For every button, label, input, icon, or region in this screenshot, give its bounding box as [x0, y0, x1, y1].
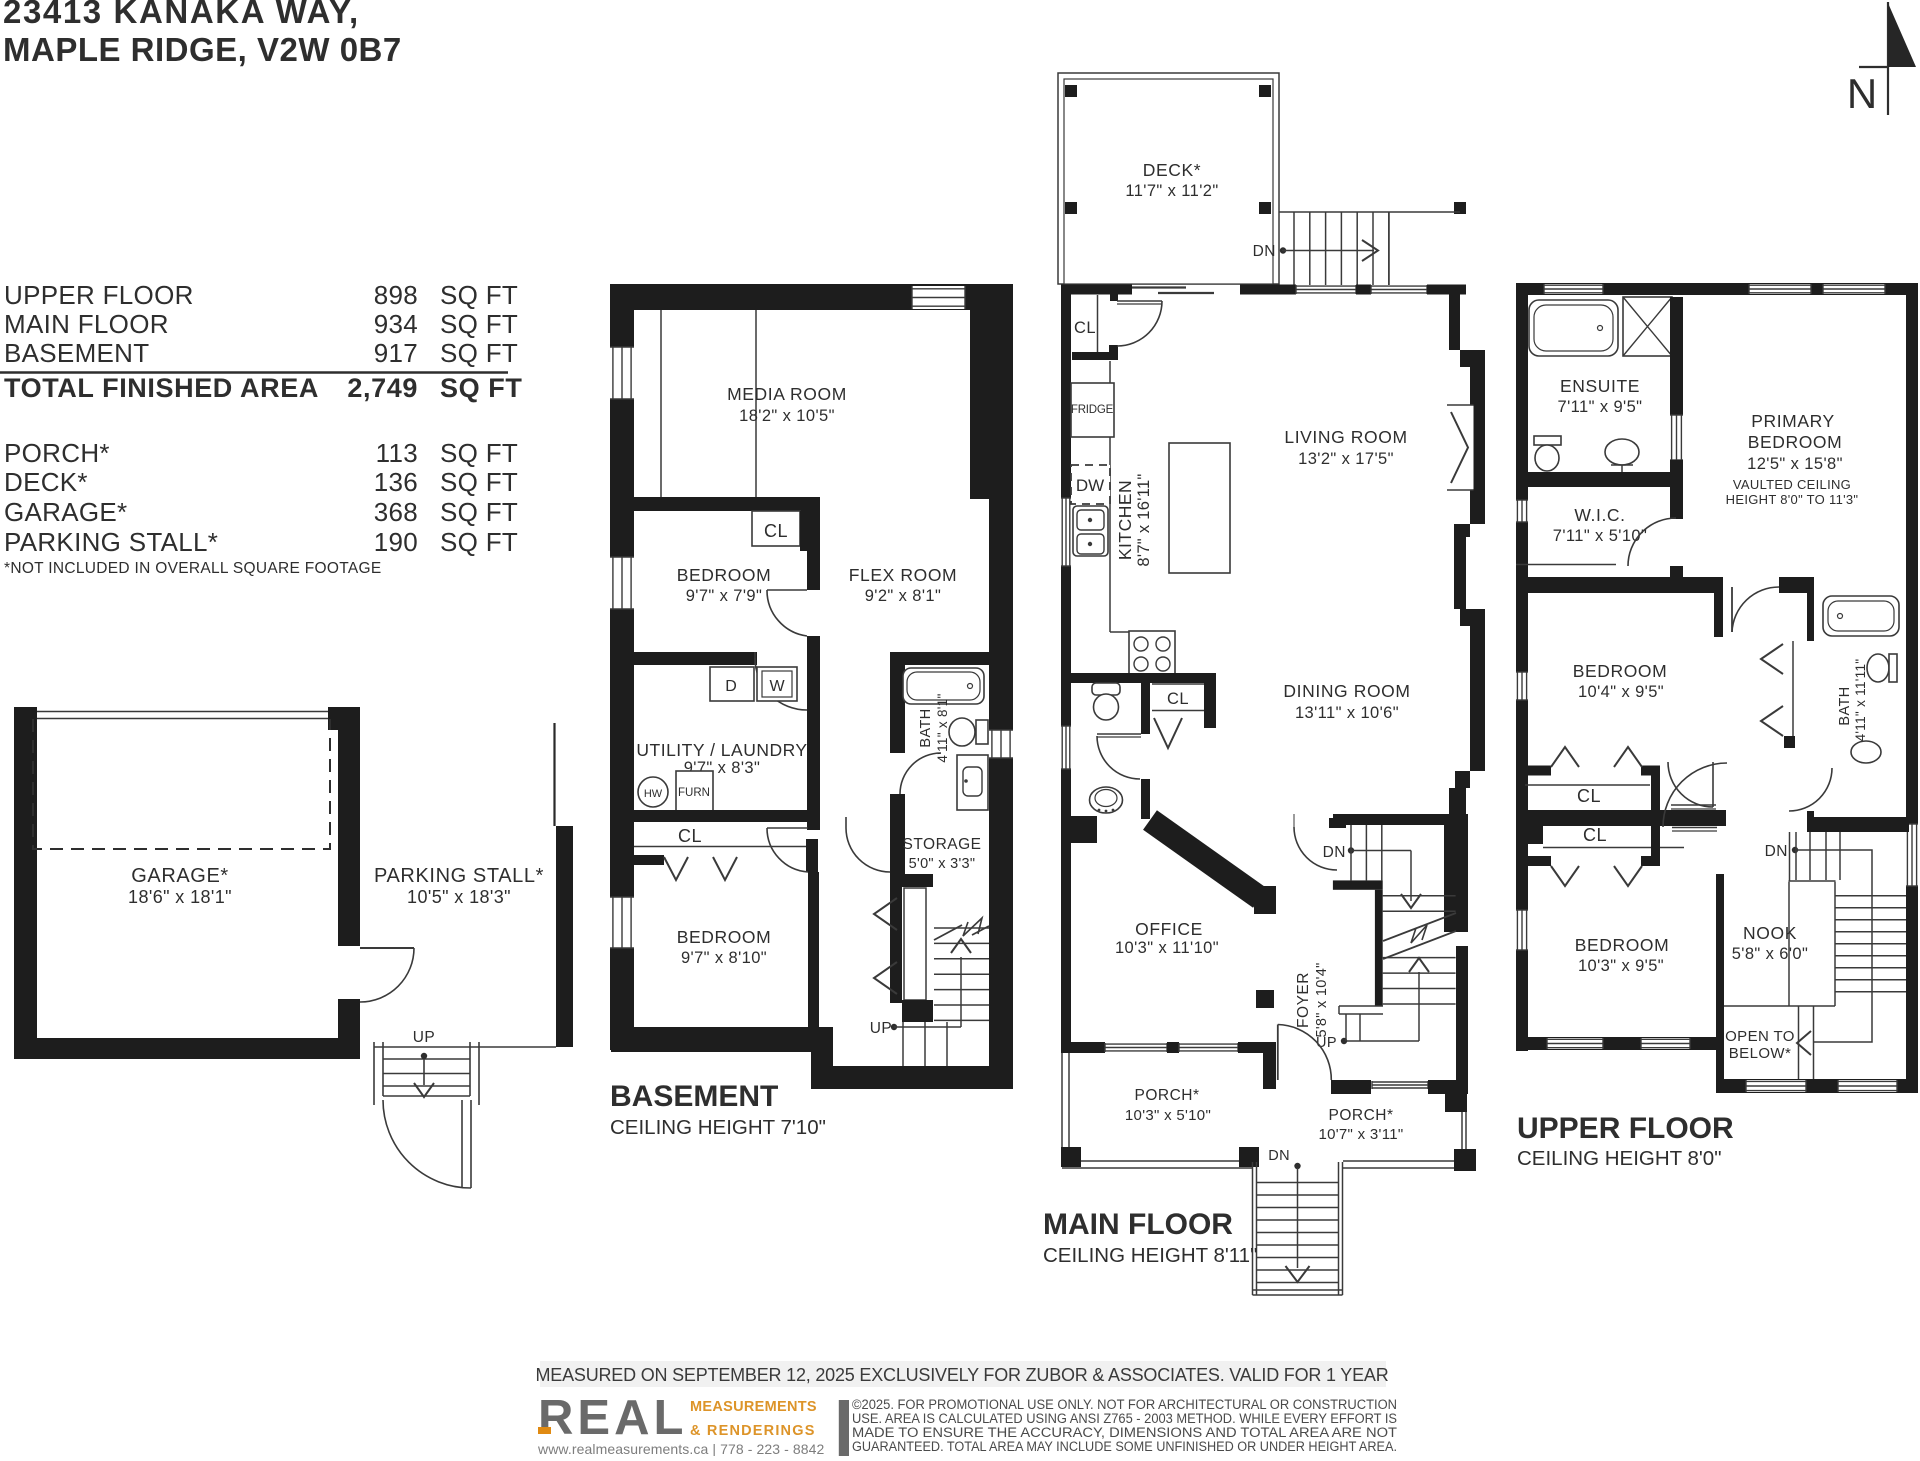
svg-text:W.I.C.: W.I.C.	[1574, 505, 1625, 525]
svg-text:898: 898	[374, 280, 418, 310]
svg-text:FRIDGE: FRIDGE	[1071, 404, 1114, 416]
svg-text:FLEX ROOM: FLEX ROOM	[849, 565, 957, 585]
svg-text:MAPLE RIDGE, V2W 0B7: MAPLE RIDGE, V2W 0B7	[3, 31, 402, 68]
svg-text:D: D	[725, 678, 737, 695]
svg-text:CEILING HEIGHT 7'10": CEILING HEIGHT 7'10"	[610, 1116, 826, 1139]
svg-text:SQ FT: SQ FT	[440, 309, 518, 339]
svg-text:UPPER FLOOR: UPPER FLOOR	[1517, 1112, 1734, 1145]
svg-text:W: W	[769, 678, 785, 695]
svg-text:CL: CL	[764, 521, 788, 541]
svg-text:DINING ROOM: DINING ROOM	[1283, 681, 1410, 701]
svg-text:DECK*: DECK*	[4, 467, 88, 497]
svg-text:SQ FT: SQ FT	[440, 497, 518, 527]
svg-text:*NOT INCLUDED IN OVERALL SQUAR: *NOT INCLUDED IN OVERALL SQUARE FOOTAGE	[4, 560, 381, 577]
svg-text:GARAGE*: GARAGE*	[131, 865, 229, 887]
svg-text:SQ FT: SQ FT	[440, 527, 518, 557]
svg-text:9'2" x 8'1": 9'2" x 8'1"	[865, 587, 942, 605]
svg-text:934: 934	[374, 309, 418, 339]
svg-text:LIVING ROOM: LIVING ROOM	[1284, 427, 1407, 447]
svg-text:GUARANTEED. TOTAL AREA MAY INC: GUARANTEED. TOTAL AREA MAY INCLUDE SOME …	[852, 1439, 1397, 1454]
svg-text:PORCH*: PORCH*	[1328, 1107, 1393, 1124]
svg-text:13'2" x 17'5": 13'2" x 17'5"	[1298, 450, 1394, 468]
svg-text:4'11" x 11'11": 4'11" x 11'11"	[1853, 659, 1868, 742]
svg-text:MADE TO ENSURE THE ACCURAC: MADE TO ENSURE THE ACCURACY, DIMENSIONS …	[852, 1425, 1397, 1440]
svg-text:CL: CL	[678, 826, 702, 846]
svg-text:18'6" x 18'1": 18'6" x 18'1"	[128, 887, 232, 907]
svg-text:PARKING STALL*: PARKING STALL*	[374, 865, 544, 887]
svg-text:10'3" x 9'5": 10'3" x 9'5"	[1578, 957, 1664, 975]
svg-text:KITCHEN: KITCHEN	[1115, 480, 1135, 560]
svg-text:MEASURED ON SEPTEMBER 12, 2025: MEASURED ON SEPTEMBER 12, 2025 EXCLUSIVE…	[536, 1365, 1389, 1385]
svg-text:12'5" x 15'8": 12'5" x 15'8"	[1747, 455, 1843, 473]
svg-text:9'7" x 7'9": 9'7" x 7'9"	[686, 587, 763, 605]
svg-text:CL: CL	[1167, 690, 1189, 708]
svg-text:DECK*: DECK*	[1143, 160, 1201, 180]
svg-text:CL: CL	[1577, 786, 1601, 806]
svg-text:5'8" x 6'0": 5'8" x 6'0"	[1732, 945, 1809, 963]
svg-text:CL: CL	[1074, 319, 1096, 337]
svg-text:10'3" x 5'10": 10'3" x 5'10"	[1125, 1107, 1211, 1124]
svg-text:10'5" x 18'3": 10'5" x 18'3"	[407, 887, 511, 907]
svg-text:SQ FT: SQ FT	[440, 467, 518, 497]
svg-text:10'7" x 3'11": 10'7" x 3'11"	[1318, 1126, 1403, 1143]
svg-text:BEDROOM: BEDROOM	[1575, 935, 1670, 955]
svg-text:9'7" x 8'10": 9'7" x 8'10"	[681, 949, 767, 967]
svg-text:4'11" x 8'1": 4'11" x 8'1"	[935, 693, 950, 762]
svg-text:5'0" x 3'3": 5'0" x 3'3"	[909, 856, 976, 872]
svg-text:MEASUREMENTS: MEASUREMENTS	[690, 1399, 817, 1415]
svg-text:23413 KANAKA WAY,: 23413 KANAKA WAY,	[3, 0, 360, 30]
svg-text:MAIN FLOOR: MAIN FLOOR	[1043, 1208, 1233, 1241]
svg-text:BASEMENT: BASEMENT	[610, 1080, 778, 1113]
svg-text:190: 190	[374, 527, 418, 557]
svg-text:FOYER: FOYER	[1295, 972, 1312, 1028]
svg-text:DN: DN	[1323, 844, 1346, 861]
svg-text:CEILING HEIGHT 8'0": CEILING HEIGHT 8'0"	[1517, 1147, 1721, 1170]
svg-text:www.realmeasurements.ca | 778: www.realmeasurements.ca | 778 - 223 - 88…	[537, 1441, 825, 1456]
svg-text:BEDROOM: BEDROOM	[1573, 661, 1668, 681]
svg-text:BELOW*: BELOW*	[1729, 1045, 1791, 1062]
svg-text:CEILING HEIGHT 8'11": CEILING HEIGHT 8'11"	[1043, 1244, 1257, 1267]
svg-text:UP: UP	[870, 1020, 893, 1037]
svg-text:DN: DN	[1765, 843, 1788, 860]
svg-text:BEDROOM: BEDROOM	[677, 927, 772, 947]
svg-text:DW: DW	[1076, 476, 1104, 495]
svg-text:368: 368	[374, 497, 418, 527]
svg-text:MEDIA ROOM: MEDIA ROOM	[727, 384, 847, 404]
svg-text:UTILITY / LAUNDRY: UTILITY / LAUNDRY	[636, 740, 807, 760]
svg-text:PRIMARY: PRIMARY	[1751, 411, 1835, 431]
svg-text:USE. AREA IS CALCULATED USING: USE. AREA IS CALCULATED USING ANSI Z765 …	[852, 1411, 1397, 1426]
svg-text:11'7" x 11'2": 11'7" x 11'2"	[1125, 182, 1218, 200]
svg-text:10'4" x 9'5": 10'4" x 9'5"	[1578, 683, 1664, 701]
svg-text:GARAGE*: GARAGE*	[4, 497, 127, 527]
svg-text:SQ FT: SQ FT	[440, 373, 523, 403]
svg-text:& RENDERINGS: & RENDERINGS	[690, 1423, 816, 1439]
svg-text:18'2" x 10'5": 18'2" x 10'5"	[739, 407, 835, 425]
svg-text:10'3" x 11'10": 10'3" x 11'10"	[1115, 939, 1219, 957]
svg-text:5'8" x 10'4": 5'8" x 10'4"	[1314, 962, 1330, 1037]
svg-text:OFFICE: OFFICE	[1135, 919, 1203, 939]
svg-text:CL: CL	[1583, 825, 1607, 845]
svg-text:ENSUITE: ENSUITE	[1560, 376, 1640, 396]
svg-text:BASEMENT: BASEMENT	[4, 338, 149, 368]
svg-text:MAIN FLOOR: MAIN FLOOR	[4, 309, 169, 339]
svg-text:HEIGHT 8'0" TO 11'3": HEIGHT 8'0" TO 11'3"	[1726, 492, 1859, 507]
svg-text:TOTAL FINISHED AREA: TOTAL FINISHED AREA	[4, 373, 319, 403]
svg-text:HW: HW	[644, 788, 663, 800]
svg-text:BEDROOM: BEDROOM	[1748, 432, 1843, 452]
svg-text:13'11" x 10'6": 13'11" x 10'6"	[1295, 704, 1399, 722]
svg-text:PARKING STALL*: PARKING STALL*	[4, 527, 218, 557]
svg-text:N: N	[1847, 70, 1877, 117]
svg-text:REAL: REAL	[538, 1391, 687, 1445]
svg-text:8'7" x 16'11": 8'7" x 16'11"	[1135, 473, 1153, 566]
svg-text:BATH: BATH	[918, 708, 934, 747]
svg-text:NOOK: NOOK	[1743, 923, 1797, 943]
svg-text:136: 136	[374, 467, 418, 497]
svg-text:FURN: FURN	[678, 787, 710, 799]
svg-text:SQ FT: SQ FT	[440, 438, 518, 468]
svg-text:OPEN TO: OPEN TO	[1725, 1028, 1795, 1045]
svg-text:DN: DN	[1268, 1148, 1290, 1164]
svg-text:STORAGE: STORAGE	[902, 836, 981, 853]
svg-text:UPPER FLOOR: UPPER FLOOR	[4, 280, 194, 310]
svg-text:2,749: 2,749	[347, 373, 418, 403]
svg-text:113: 113	[376, 438, 418, 468]
svg-text:SQ FT: SQ FT	[440, 338, 518, 368]
svg-text:BATH: BATH	[1837, 686, 1853, 725]
svg-text:917: 917	[374, 338, 418, 368]
svg-text:7'11" x 5'10": 7'11" x 5'10"	[1553, 527, 1647, 545]
svg-text:DN: DN	[1253, 243, 1276, 260]
svg-text:PORCH*: PORCH*	[4, 438, 110, 468]
svg-text:SQ FT: SQ FT	[440, 280, 518, 310]
svg-text:BEDROOM: BEDROOM	[677, 565, 772, 585]
svg-text:UP: UP	[413, 1029, 436, 1046]
svg-text:PORCH*: PORCH*	[1134, 1087, 1199, 1104]
svg-text:7'11" x 9'5": 7'11" x 9'5"	[1558, 398, 1643, 416]
svg-text:©2025. FOR PROMOTIONAL USE ONL: ©2025. FOR PROMOTIONAL USE ONLY. NOT FOR…	[852, 1397, 1397, 1412]
svg-text:VAULTED CEILING: VAULTED CEILING	[1733, 477, 1851, 492]
